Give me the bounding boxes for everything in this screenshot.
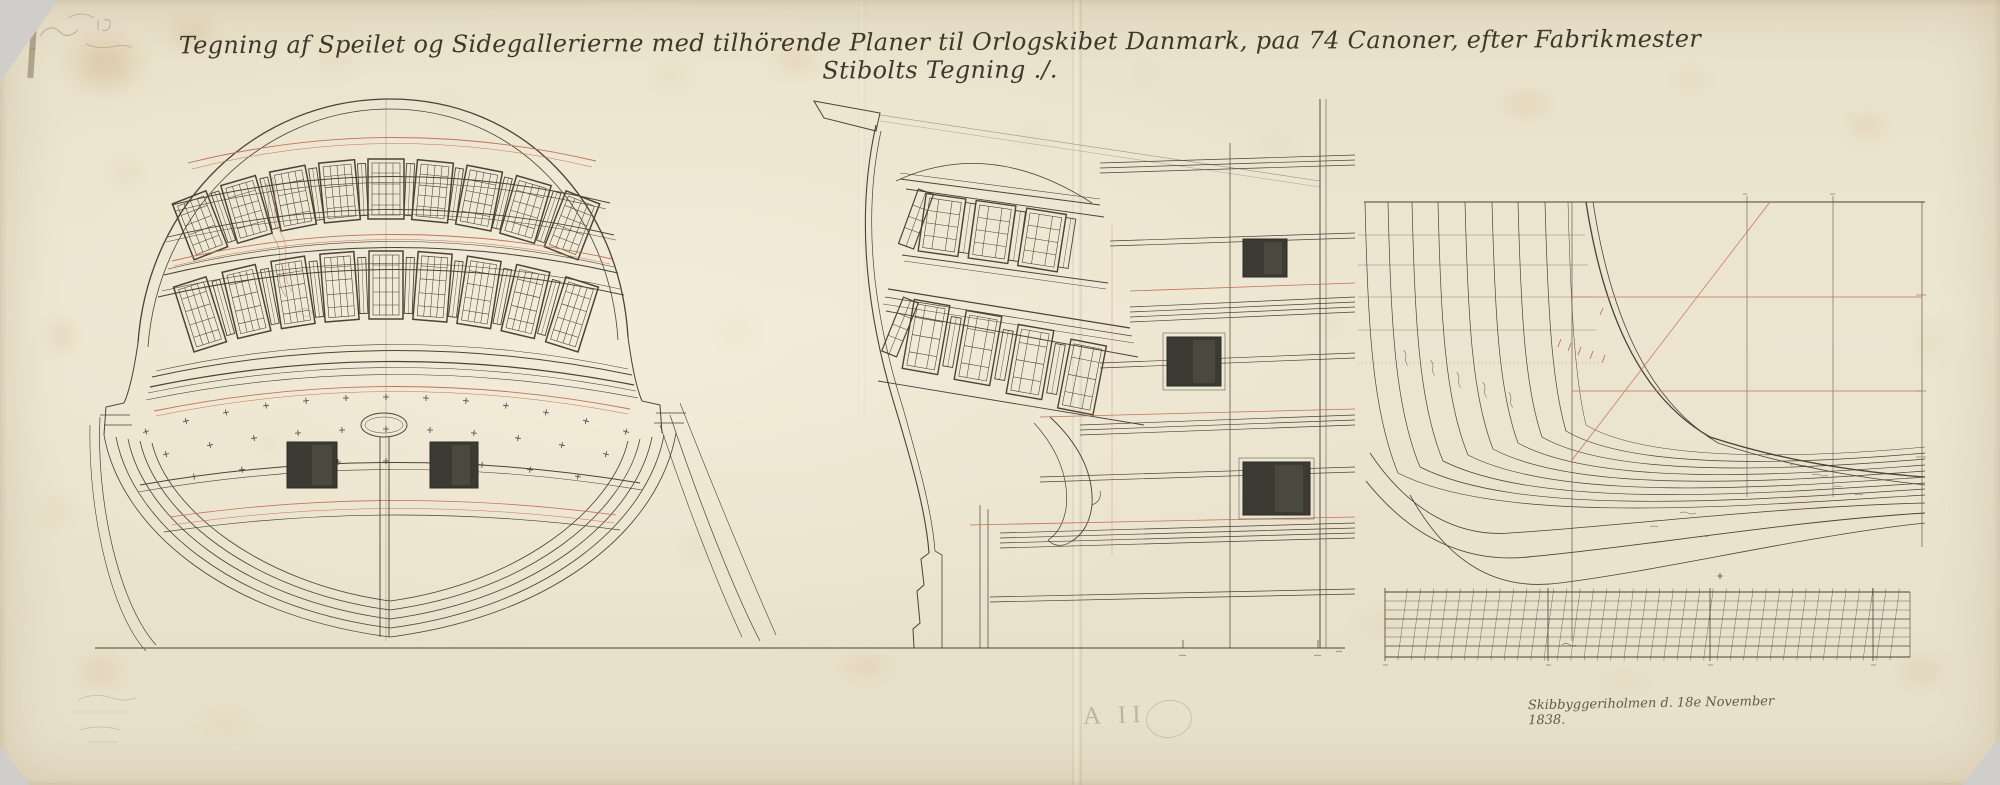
red-reference-lines xyxy=(1558,202,1926,460)
pencil-note-bottom-left xyxy=(58,682,188,754)
gun-ports xyxy=(1163,239,1314,519)
pencil-note-top-left xyxy=(28,4,178,66)
section-curves xyxy=(1365,202,1925,584)
counter-moldings xyxy=(138,361,642,532)
signature-date: Skibbyggeriholmen d. 18e November 1838. xyxy=(1528,694,1788,729)
lines-plan-drawing xyxy=(1350,195,1930,670)
upper-gallery-band xyxy=(164,137,618,275)
diagonal-scale-band xyxy=(1383,573,1910,665)
archive-stamp-ring xyxy=(1144,697,1195,741)
drawing-title: Tegning af Speilet og Sidegallerierne me… xyxy=(160,25,1720,88)
plan-grid xyxy=(1358,194,1925,646)
scanned-drawing: Tegning af Speilet og Sidegallerierne me… xyxy=(0,0,2000,785)
archive-stamp-text: A II xyxy=(1083,701,1147,730)
lower-gallery-band xyxy=(152,251,632,377)
archive-stamp: A II xyxy=(1083,701,1148,731)
stain xyxy=(1480,78,1572,130)
stern-elevation-drawing xyxy=(60,85,790,670)
stain xyxy=(1830,100,1902,152)
stern-timber-profile xyxy=(814,101,1320,648)
hull-frame-curves xyxy=(90,403,776,651)
quarter-gallery-profile-drawing xyxy=(800,85,1360,670)
ground-line xyxy=(90,636,1360,664)
rudder-head xyxy=(361,413,407,637)
curve-labels xyxy=(1403,350,1863,537)
gun-ports xyxy=(287,442,478,488)
paper-sheet: Tegning af Speilet og Sidegallerierne me… xyxy=(0,0,2000,785)
stain xyxy=(180,700,272,746)
